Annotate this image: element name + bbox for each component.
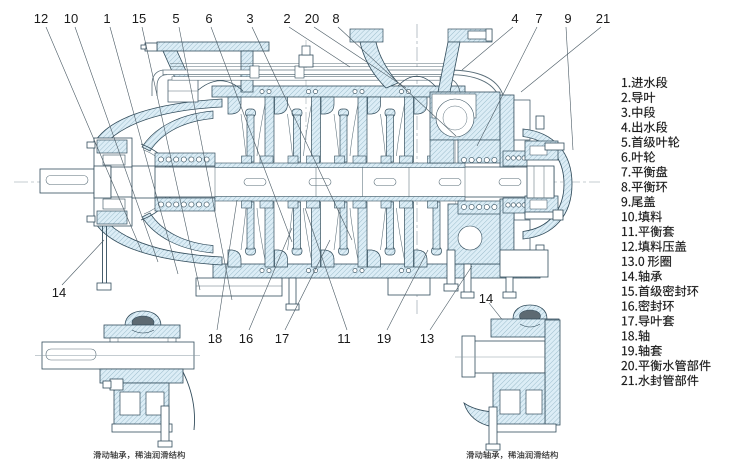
svg-text:2: 2 xyxy=(283,11,290,26)
svg-text:21: 21 xyxy=(596,11,610,26)
svg-text:6: 6 xyxy=(205,11,212,26)
svg-text:14: 14 xyxy=(52,285,66,300)
svg-text:1: 1 xyxy=(103,11,110,26)
svg-text:14: 14 xyxy=(479,291,493,306)
svg-text:15: 15 xyxy=(132,11,146,26)
svg-text:3: 3 xyxy=(246,11,253,26)
svg-text:13: 13 xyxy=(420,331,434,346)
svg-text:11: 11 xyxy=(337,331,351,346)
svg-text:12: 12 xyxy=(34,11,48,26)
svg-text:7: 7 xyxy=(535,11,542,26)
svg-text:18: 18 xyxy=(208,331,222,346)
svg-text:19: 19 xyxy=(377,331,391,346)
svg-text:10: 10 xyxy=(64,11,78,26)
svg-text:20: 20 xyxy=(305,11,319,26)
svg-text:17: 17 xyxy=(275,331,289,346)
svg-text:9: 9 xyxy=(564,11,571,26)
svg-text:16: 16 xyxy=(239,331,253,346)
svg-text:8: 8 xyxy=(332,11,339,26)
svg-text:4: 4 xyxy=(511,11,518,26)
svg-text:5: 5 xyxy=(172,11,179,26)
